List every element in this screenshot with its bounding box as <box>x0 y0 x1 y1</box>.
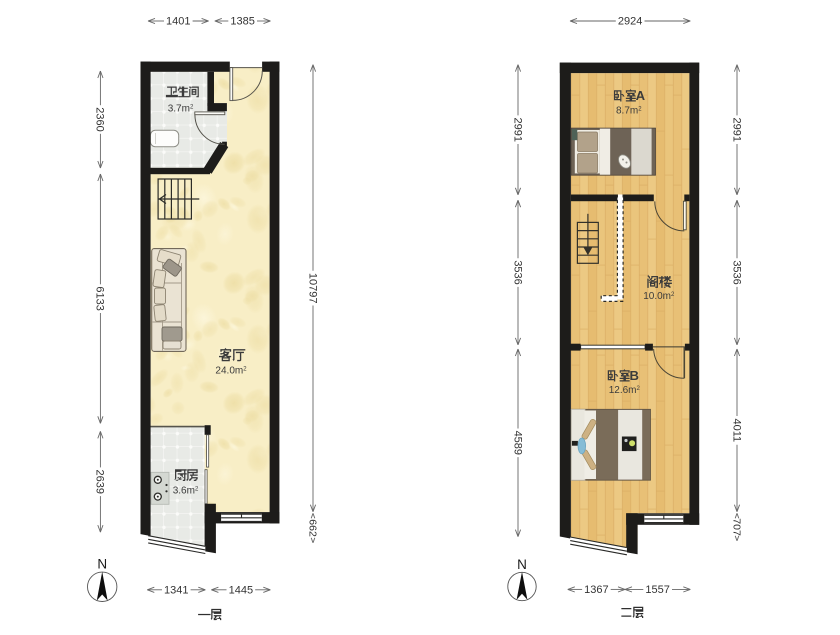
svg-text:24.0m2: 24.0m2 <box>215 366 247 377</box>
svg-text:2639: 2639 <box>94 470 106 494</box>
svg-text:2991: 2991 <box>730 117 742 141</box>
svg-text:6133: 6133 <box>94 286 106 310</box>
svg-text:B: B <box>629 368 638 383</box>
svg-text:4011: 4011 <box>730 419 742 443</box>
svg-text:707: 707 <box>730 518 742 536</box>
svg-text:10.0m2: 10.0m2 <box>643 291 675 302</box>
svg-text:1445: 1445 <box>229 585 253 597</box>
svg-text:1367: 1367 <box>584 584 608 596</box>
svg-text:662: 662 <box>306 519 318 537</box>
svg-text:3536: 3536 <box>730 260 742 284</box>
svg-text:2924: 2924 <box>618 16 642 28</box>
svg-text:A: A <box>636 88 646 103</box>
svg-text:4589: 4589 <box>511 431 523 455</box>
svg-text:12.6m2: 12.6m2 <box>609 385 641 396</box>
svg-text:1341: 1341 <box>164 585 188 597</box>
svg-text:10797: 10797 <box>306 273 318 304</box>
svg-text:1401: 1401 <box>166 16 190 28</box>
svg-text:1557: 1557 <box>645 584 669 596</box>
svg-text:N: N <box>97 557 107 572</box>
svg-text:2991: 2991 <box>511 117 523 141</box>
svg-text:2360: 2360 <box>94 107 106 131</box>
svg-text:1385: 1385 <box>230 16 254 28</box>
svg-text:3536: 3536 <box>511 260 523 284</box>
svg-text:N: N <box>517 557 527 572</box>
